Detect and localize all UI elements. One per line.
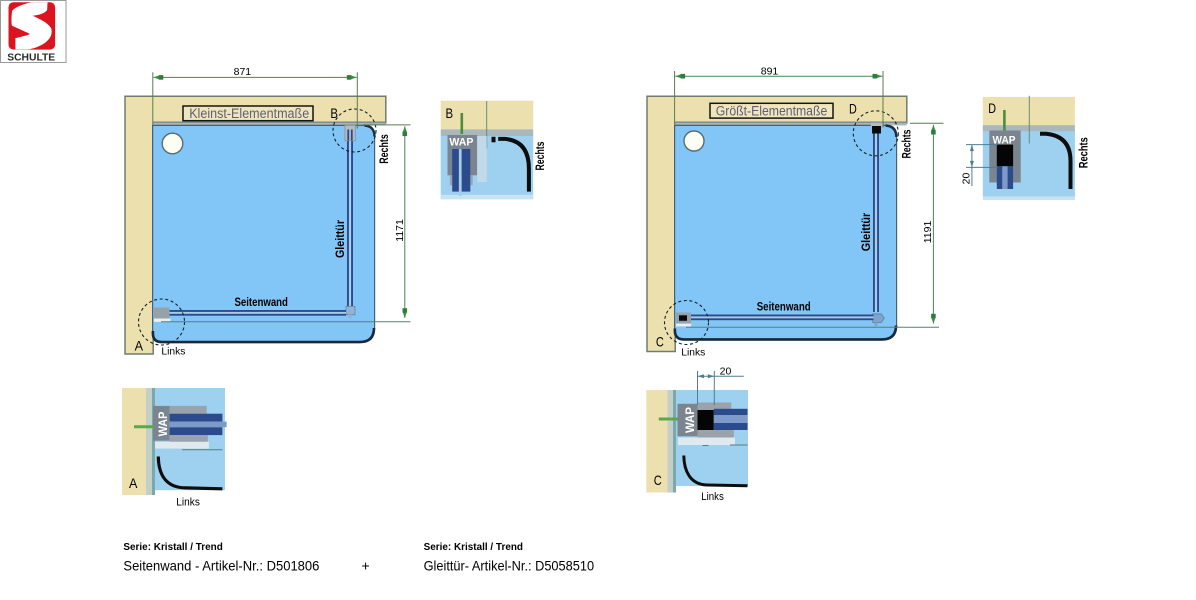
- svg-text:C: C: [656, 333, 664, 349]
- svg-text:Links: Links: [161, 346, 185, 358]
- svg-text:Rechts: Rechts: [1076, 137, 1090, 168]
- svg-text:Gleittür- Artikel-Nr.: D50585: Gleittür- Artikel-Nr.: D5058510: [424, 557, 595, 573]
- svg-text:WAP: WAP: [449, 137, 473, 149]
- svg-text:Seitenwand - Artikel-Nr.: D50: Seitenwand - Artikel-Nr.: D501806: [123, 557, 319, 573]
- svg-text:SCHULTE: SCHULTE: [7, 51, 55, 63]
- svg-text:D: D: [988, 100, 996, 116]
- svg-text:Seitenwand: Seitenwand: [757, 300, 811, 314]
- svg-text:Rechts: Rechts: [899, 129, 913, 158]
- svg-text:891: 891: [761, 66, 779, 78]
- svg-text:Seitenwand: Seitenwand: [234, 295, 288, 309]
- svg-text:Gleittür: Gleittür: [333, 220, 347, 258]
- svg-text:A: A: [135, 338, 144, 354]
- svg-text:B: B: [446, 105, 454, 121]
- svg-text:Gleittür: Gleittür: [859, 212, 873, 251]
- svg-text:871: 871: [234, 66, 252, 78]
- svg-text:20: 20: [720, 366, 732, 378]
- svg-text:Rechts: Rechts: [377, 134, 391, 164]
- svg-text:20: 20: [961, 173, 973, 185]
- svg-text:Größt-Elementmaße: Größt-Elementmaße: [716, 103, 828, 118]
- svg-text:Rechts: Rechts: [533, 141, 547, 170]
- svg-text:Links: Links: [681, 346, 705, 358]
- svg-text:Links: Links: [701, 491, 724, 503]
- svg-text:+: +: [362, 557, 370, 573]
- svg-text:C: C: [654, 472, 662, 488]
- svg-text:1171: 1171: [394, 219, 406, 242]
- svg-text:A: A: [129, 475, 138, 491]
- svg-text:Kleinst-Elementmaße: Kleinst-Elementmaße: [189, 106, 309, 121]
- svg-text:WAP: WAP: [685, 407, 697, 433]
- svg-text:Links: Links: [176, 497, 200, 509]
- svg-text:1191: 1191: [922, 221, 934, 244]
- svg-text:Serie: Kristall / Trend: Serie: Kristall / Trend: [123, 542, 222, 553]
- svg-text:D: D: [849, 100, 857, 116]
- svg-text:Serie: Kristall / Trend: Serie: Kristall / Trend: [424, 542, 523, 553]
- svg-text:WAP: WAP: [158, 411, 170, 436]
